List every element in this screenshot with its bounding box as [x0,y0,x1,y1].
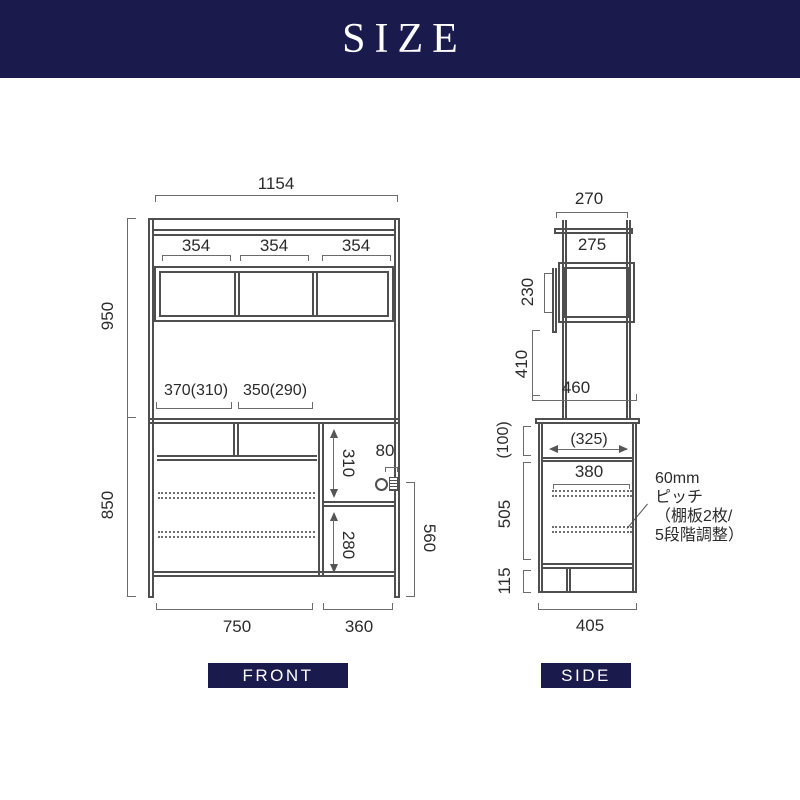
dim-325-arrow-line [553,449,627,450]
arrow-right-icon [619,445,628,453]
dim-270-line [556,212,628,213]
tick [532,395,540,396]
tick [636,394,637,400]
dim-405-line [538,609,637,610]
dim-275: 275 [578,235,606,255]
side-view-tag: SIDE [541,663,631,688]
tick [538,603,539,609]
dim-270: 270 [575,189,603,209]
dim-100-line [523,426,524,456]
tick [556,212,557,218]
side-view: 270 275 230 410 460 (100) (325) 380 [0,0,800,800]
dim-100: (100) [495,421,513,458]
tick [627,212,628,218]
dim-460-line [532,400,637,401]
dim-380: 380 [575,462,603,482]
tick [532,330,540,331]
side-upper-box-inner [563,267,630,318]
note-line-4: 5段階調整） [655,526,744,545]
side-counter-slab [535,418,640,424]
tick [532,394,533,400]
note-line-3: （棚板2枚/ [655,507,744,526]
arrow-left-icon [549,445,558,453]
tick [523,455,531,456]
dim-460: 460 [562,378,590,398]
tick [544,312,552,313]
tick [523,570,531,571]
dim-115: 115 [495,567,515,594]
tick [523,426,531,427]
note-line-2: ピッチ [655,488,744,507]
tick [636,603,637,609]
dim-380-line [553,484,630,485]
dim-410: 410 [512,350,532,378]
dim-230: 230 [518,278,538,306]
shelf-pitch-note: 60mm ピッチ （棚板2枚/ 5段階調整） [655,469,744,545]
tick [523,559,531,560]
tick [629,484,630,489]
dim-325: (325) [570,431,607,449]
tick [544,273,552,274]
side-bottom-edge [538,591,637,593]
dim-230-line [544,273,545,313]
side-adjustable-shelf-dashed [552,490,632,497]
tick [523,592,531,593]
note-leader-line [627,504,648,529]
dim-115-line [523,570,524,593]
side-toe-kick-line [566,569,571,591]
note-line-1: 60mm [655,469,744,488]
dim-405: 405 [576,616,604,636]
side-body-right-edge [632,424,637,591]
size-diagram: SIZE 1154 354 [0,0,800,800]
side-bottom-rail [543,563,632,569]
dim-505-line [523,462,524,560]
dim-410-line [532,330,533,396]
side-adjustable-shelf-dashed [552,526,632,533]
side-view-tag-label: SIDE [561,666,611,686]
tick [553,484,554,489]
side-left-plank [552,268,557,333]
tick [523,462,531,463]
dim-505: 505 [495,500,515,528]
side-top-shelf [554,228,633,234]
